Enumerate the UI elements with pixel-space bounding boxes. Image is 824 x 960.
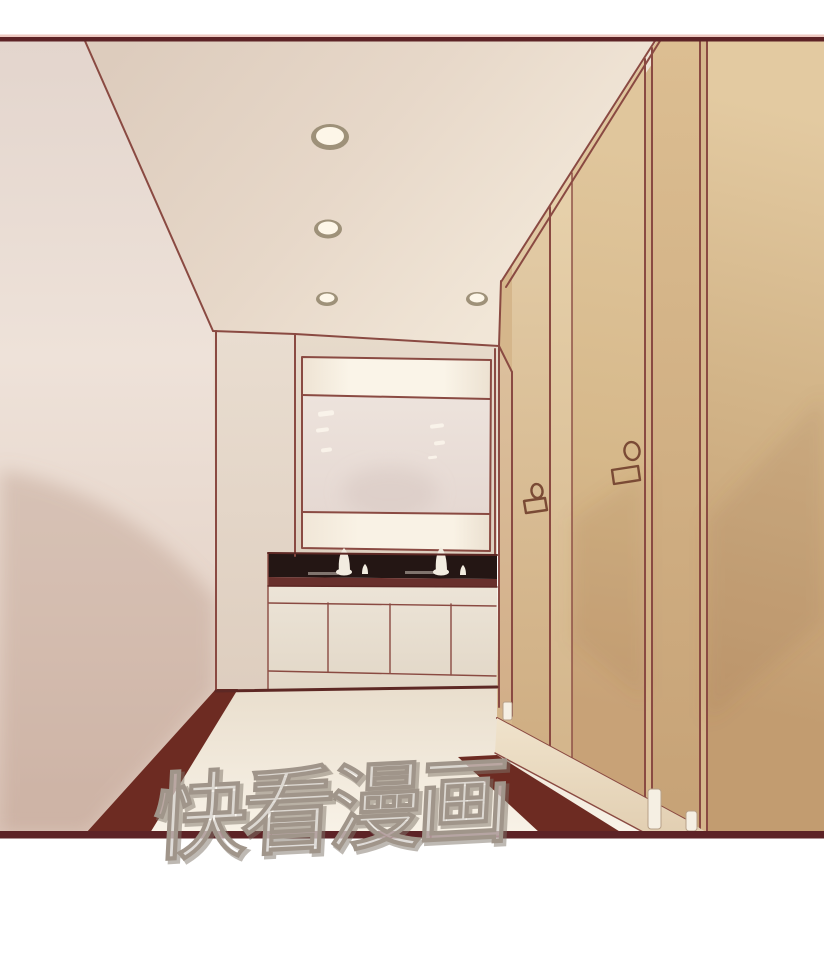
- stall-foot: [686, 811, 697, 831]
- panel-content: [0, 41, 824, 833]
- ceiling-light-2: [314, 220, 342, 239]
- stall-front-edge-face: [499, 346, 512, 716]
- mirror-reflection-blob: [342, 466, 438, 518]
- stall-foot: [503, 702, 512, 720]
- counter-bottom-line: [268, 586, 497, 587]
- comic-panel-page: 快看漫画 快看漫画: [0, 0, 824, 960]
- stall-panel-near: [652, 41, 700, 829]
- mirror-unit: [302, 349, 495, 556]
- watermark-text: 快看漫画: [151, 747, 508, 875]
- mirror-top-light-band: [302, 357, 491, 399]
- mirror-bottom-light-band: [302, 512, 490, 551]
- panel-top-border: [0, 37, 824, 42]
- bathroom-scene-illustration: 快看漫画 快看漫画: [0, 0, 824, 960]
- stall-partition-strip: [550, 173, 572, 758]
- top-border-highlight: [0, 35, 824, 38]
- ceiling-light-3: [316, 292, 338, 306]
- ceiling-light-4: [466, 292, 488, 306]
- ceiling-light-1: [311, 124, 349, 150]
- sink-basin-glint: [405, 571, 435, 574]
- stall-door-far: [512, 207, 550, 746]
- watermark: 快看漫画 快看漫画: [151, 747, 511, 878]
- stall-foot: [648, 789, 661, 829]
- sink-basin-glint: [308, 572, 338, 575]
